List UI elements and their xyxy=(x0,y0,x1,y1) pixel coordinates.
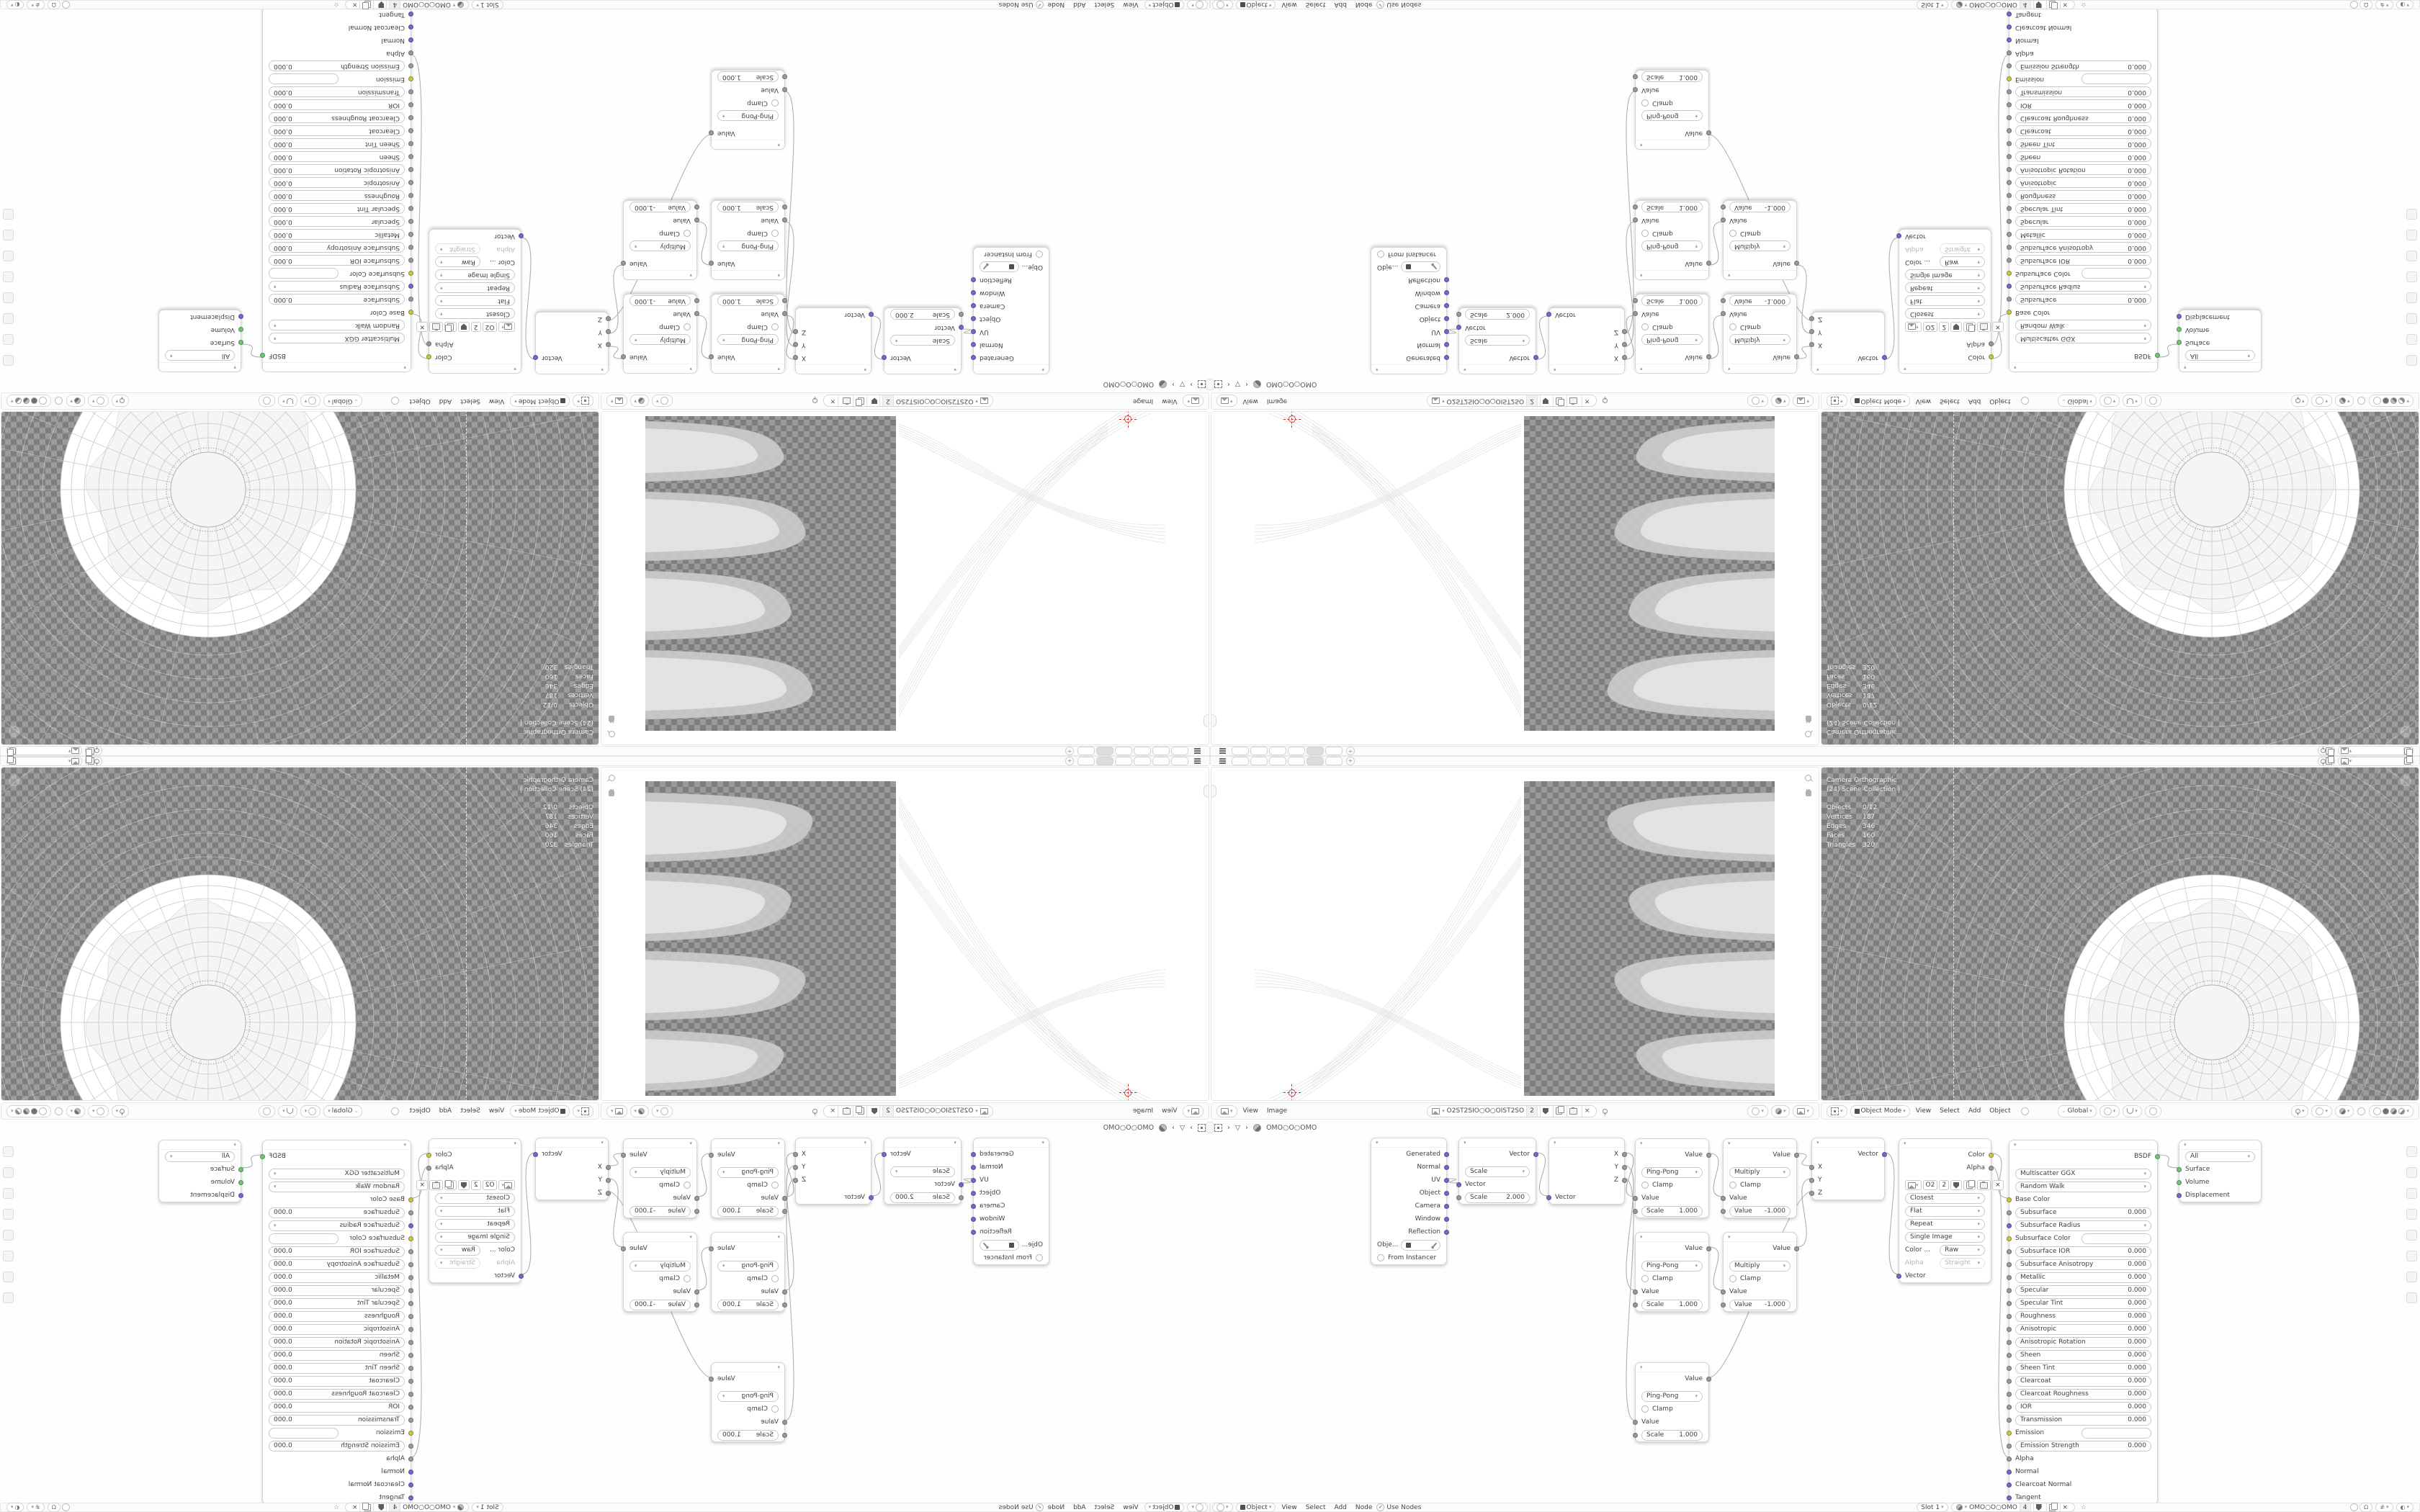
socket[interactable] xyxy=(2007,1340,2012,1345)
value-slider-clearcoat-roughness[interactable]: Clearcoat Roughness0.000 xyxy=(2009,1387,2157,1400)
math-pingpong-node[interactable]: ▾ValuePing-Pong▾ClampValueScale1.000 xyxy=(1635,1138,1709,1218)
socket[interactable] xyxy=(2007,284,2012,289)
output-normal[interactable]: Normal xyxy=(1371,1161,1446,1174)
value-slider-clearcoat-roughness[interactable]: Clearcoat Roughness0.000 xyxy=(2009,112,2157,125)
add-button[interactable]: + xyxy=(1065,757,1074,765)
material-datablock[interactable]: ▾ OMO○O○OMO 4 × xyxy=(345,0,469,9)
play-reverse-button[interactable] xyxy=(1269,747,1286,755)
object-field[interactable]: Obje... xyxy=(974,1238,1049,1251)
output-reflection[interactable]: Reflection xyxy=(974,1225,1049,1238)
socket[interactable] xyxy=(1444,1178,1449,1183)
socket[interactable] xyxy=(1721,1302,1726,1308)
socket[interactable] xyxy=(971,356,976,361)
socket[interactable] xyxy=(2177,1167,2182,1172)
output-window[interactable]: Window xyxy=(1371,1212,1446,1225)
select-repeat[interactable]: Repeat▾ xyxy=(429,1218,521,1230)
socket[interactable] xyxy=(426,1153,431,1158)
shader-editor-area[interactable]: › ▽ › OMO○O○OMO ▾GeneratedNormalUVObject… xyxy=(0,1120,1210,1503)
output-generated[interactable]: Generated xyxy=(974,351,1049,364)
chevron-down-icon[interactable]: ▾ xyxy=(1442,399,1445,404)
jump-end-button[interactable] xyxy=(1325,747,1343,755)
separate-xyz-node[interactable]: ▾XYZVector xyxy=(1549,307,1625,374)
unlink-x-icon[interactable]: × xyxy=(2060,1503,2071,1511)
value-slider-roughness[interactable]: Roughness0.000 xyxy=(2009,189,2157,202)
menu-view[interactable]: View xyxy=(1123,1504,1138,1511)
hidden-panel-tab[interactable] xyxy=(1211,714,1216,727)
socket[interactable] xyxy=(408,1314,413,1319)
copy-icon[interactable] xyxy=(2049,1504,2056,1511)
socket[interactable] xyxy=(1622,1165,1627,1170)
playback-buttons[interactable] xyxy=(1076,757,1188,765)
math-multiply-node[interactable]: ▾ValueMultiply▾ClampValueValue-1.000 xyxy=(1723,200,1797,280)
input-value[interactable]: Value xyxy=(1636,1285,1708,1298)
output-x[interactable]: X xyxy=(1549,1148,1624,1161)
copy-icon[interactable] xyxy=(88,747,94,755)
value-slider-anisotropic-rotation[interactable]: Anisotropic Rotation0.000 xyxy=(2009,1336,2157,1349)
socket[interactable] xyxy=(959,1195,964,1200)
value-slider-transmission[interactable]: Transmission0.000 xyxy=(263,86,411,99)
snap-target-button[interactable]: #▾ xyxy=(2375,0,2393,9)
value-slider-value[interactable]: Value-1.000 xyxy=(624,1298,696,1311)
socket[interactable] xyxy=(793,356,798,361)
menu-image[interactable]: Image xyxy=(1133,1107,1153,1115)
socket[interactable] xyxy=(782,1196,787,1201)
socket[interactable] xyxy=(1882,1152,1887,1157)
pivot-button[interactable]: ◐▾ xyxy=(6,1503,24,1512)
socket[interactable] xyxy=(533,1152,538,1157)
socket[interactable] xyxy=(782,1302,787,1308)
editor-type-button[interactable]: ▾ xyxy=(1187,0,1208,9)
pin-icon[interactable] xyxy=(94,759,99,764)
color-field-emission[interactable]: Emission xyxy=(2009,73,2157,86)
select-ping-pong[interactable]: Ping-Pong▾ xyxy=(1636,1166,1708,1179)
output-value[interactable]: Value xyxy=(1724,257,1796,270)
select-ping-pong[interactable]: Ping-Pong▾ xyxy=(712,240,784,253)
socket[interactable] xyxy=(2007,220,2012,225)
image-datablock[interactable]: ▾ O2ST2SIO○O○OIST2SO 2 × xyxy=(823,395,993,408)
input-vector[interactable]: Vector xyxy=(1459,1178,1536,1191)
socket[interactable] xyxy=(1444,1165,1449,1170)
value-slider-specular-tint[interactable]: Specular Tint0.000 xyxy=(263,1297,411,1310)
input-value[interactable]: Value xyxy=(1724,214,1796,227)
checkbox-clamp[interactable]: Clamp xyxy=(1636,227,1708,240)
math-pingpong-node[interactable]: ▾ValuePing-Pong▾ClampValueScale1.000 xyxy=(1635,70,1709,150)
output-vector[interactable]: Vector xyxy=(1812,351,1884,364)
socket[interactable] xyxy=(1721,1290,1726,1295)
socket[interactable] xyxy=(606,1178,611,1183)
viewport-area[interactable]: Camera Orthographic (24) Scene Collectio… xyxy=(1821,767,2419,1101)
socket[interactable] xyxy=(971,291,976,296)
value-slider-ior[interactable]: IOR0.000 xyxy=(263,99,411,112)
image-canvas[interactable] xyxy=(1524,416,1775,731)
value-slider-emission-strength[interactable]: Emission Strength0.000 xyxy=(2009,1439,2157,1452)
input-displacement[interactable]: Displacement xyxy=(2179,310,2261,323)
select-color-[interactable]: Color ...Raw▾ xyxy=(1899,256,1991,269)
socket[interactable] xyxy=(2177,328,2182,333)
value-slider-emission-strength[interactable]: Emission Strength0.000 xyxy=(2009,60,2157,73)
select-ping-pong[interactable]: Ping-Pong▾ xyxy=(712,109,784,122)
checkbox-clamp[interactable]: Clamp xyxy=(1724,1272,1796,1285)
select-flat[interactable]: Flat▾ xyxy=(429,294,521,307)
input-z[interactable]: Z xyxy=(536,312,608,325)
slot-selector[interactable]: Slot 1▾ xyxy=(472,1503,503,1512)
jump-end-button[interactable] xyxy=(1077,747,1095,755)
output-object[interactable]: Object xyxy=(974,1187,1049,1200)
image-editor-area[interactable] xyxy=(1211,411,1819,745)
output-reflection[interactable]: Reflection xyxy=(974,274,1049,287)
input-x[interactable]: X xyxy=(1812,1161,1884,1174)
checkbox-clamp[interactable]: Clamp xyxy=(624,227,696,240)
output-vector[interactable]: Vector xyxy=(536,1148,608,1161)
socket[interactable] xyxy=(1721,1196,1726,1201)
socket[interactable] xyxy=(1633,312,1638,317)
editor-type-button[interactable]: ▾ xyxy=(1212,0,1233,9)
vector-math-scale-node[interactable]: ▾VectorScale▾VectorScale2.000 xyxy=(1458,1138,1536,1205)
pivot-selector[interactable]: ▾ xyxy=(300,395,321,408)
value-slider-ior[interactable]: IOR0.000 xyxy=(263,1400,411,1413)
socket[interactable] xyxy=(782,1209,787,1214)
copy-icon[interactable] xyxy=(2404,747,2411,755)
copy-icon[interactable] xyxy=(858,397,864,405)
image-datablock-row[interactable]: ▾O22× xyxy=(429,320,521,333)
menu-select[interactable]: Select xyxy=(1095,1504,1115,1511)
value-slider-metallic[interactable]: Metallic0.000 xyxy=(2009,1271,2157,1284)
image-datablock-row[interactable]: ▾O22× xyxy=(429,1179,521,1192)
socket[interactable] xyxy=(782,1290,787,1295)
value-slider-value[interactable]: Value-1.000 xyxy=(1724,201,1796,214)
proportional-circle[interactable] xyxy=(62,1,70,9)
overlay-dropdown-button[interactable]: ▾ xyxy=(1747,1105,1768,1117)
pin-icon[interactable] xyxy=(1603,1109,1608,1114)
socket[interactable] xyxy=(408,1353,413,1358)
input-volume[interactable]: Volume xyxy=(2179,1176,2261,1189)
use-nodes-label[interactable]: Use Nodes xyxy=(999,1,1034,9)
snap-magnet-button[interactable]: Ω xyxy=(2359,0,2372,9)
socket[interactable] xyxy=(408,1197,413,1202)
socket[interactable] xyxy=(869,1195,874,1200)
image-datablock[interactable]: ▾ O2ST2SIO○O○OIST2SO 2 × xyxy=(823,1105,993,1117)
value-slider-subsurface-anisotropy[interactable]: Subsurface Anisotropy0.000 xyxy=(263,241,411,254)
principled-bsdf-node[interactable]: ▾BSDFMultiscatter GGX▾Random Walk▾Base C… xyxy=(262,9,411,372)
socket[interactable] xyxy=(2007,1470,2012,1475)
socket[interactable] xyxy=(2007,64,2012,69)
prev-keyframe-button[interactable] xyxy=(1152,747,1170,755)
socket[interactable] xyxy=(1633,1209,1638,1214)
socket[interactable] xyxy=(971,343,976,348)
user-count[interactable]: 2 xyxy=(1526,1106,1538,1117)
menu-view[interactable]: View xyxy=(1243,1107,1258,1115)
color-field-subsurface-color[interactable]: Subsurface Color xyxy=(263,1232,411,1245)
output-value[interactable]: Value xyxy=(712,351,784,364)
value-slider-sheen[interactable]: Sheen0.000 xyxy=(263,150,411,163)
unlink-x-icon[interactable]: × xyxy=(1582,1106,1592,1117)
copy-icon[interactable] xyxy=(2049,1,2056,9)
input-value[interactable]: Value xyxy=(712,214,784,227)
input-displacement[interactable]: Displacement xyxy=(159,310,241,323)
image-texture-node[interactable]: ▾ColorAlpha▾O22×Closest▾Flat▾Repeat▾Sing… xyxy=(1899,229,1991,374)
select-multiply[interactable]: Multiply▾ xyxy=(1724,240,1796,253)
select-multiscatter-ggx[interactable]: Multiscatter GGX▾ xyxy=(2009,1167,2157,1180)
value-slider-roughness[interactable]: Roughness0.000 xyxy=(263,1310,411,1323)
image-canvas[interactable] xyxy=(645,781,896,1096)
select-ping-pong[interactable]: Ping-Pong▾ xyxy=(712,1390,784,1403)
socket[interactable] xyxy=(408,1470,413,1475)
input-value[interactable]: Value xyxy=(712,1416,784,1428)
output-y[interactable]: Y xyxy=(796,1161,871,1174)
input-value[interactable]: Value xyxy=(1724,1192,1796,1205)
checkbox-clamp[interactable]: Clamp xyxy=(624,1179,696,1192)
input-alpha[interactable]: Alpha xyxy=(2009,1452,2157,1465)
output-value[interactable]: Value xyxy=(624,257,696,270)
channels-dropdown-button[interactable]: ▾ xyxy=(1771,1105,1791,1117)
output-x[interactable]: X xyxy=(796,351,871,364)
socket[interactable] xyxy=(1809,343,1814,348)
input-base-color[interactable]: Base Color xyxy=(2009,306,2157,319)
star-icon[interactable]: ☆ xyxy=(2081,1,2087,9)
pin-icon[interactable] xyxy=(1603,399,1608,404)
menu-view[interactable]: View xyxy=(1916,397,1931,405)
copy-icon[interactable] xyxy=(2404,757,2411,765)
value-slider-emission-strength[interactable]: Emission Strength0.000 xyxy=(263,60,411,73)
input-value[interactable]: Value xyxy=(1636,1192,1708,1205)
select-color-[interactable]: Color ...Raw▾ xyxy=(429,1243,521,1256)
value-slider-subsurface-ior[interactable]: Subsurface IOR0.000 xyxy=(263,254,411,267)
input-tangent[interactable]: Tangent xyxy=(263,9,411,21)
input-clearcoat-normal[interactable]: Clearcoat Normal xyxy=(2009,1478,2157,1491)
socket[interactable] xyxy=(971,278,976,283)
value-slider-sheen-tint[interactable]: Sheen Tint0.000 xyxy=(2009,1362,2157,1374)
socket[interactable] xyxy=(1721,205,1726,210)
socket[interactable] xyxy=(2007,233,2012,238)
output-reflection[interactable]: Reflection xyxy=(1371,274,1446,287)
socket[interactable] xyxy=(793,1152,798,1157)
select-flat[interactable]: Flat▾ xyxy=(429,1205,521,1218)
menu-view[interactable]: View xyxy=(489,1107,504,1115)
value-slider-metallic[interactable]: Metallic0.000 xyxy=(2009,228,2157,241)
socket[interactable] xyxy=(519,1274,524,1279)
fake-user-shield-icon[interactable] xyxy=(871,1108,877,1115)
hamburger-menu-icon[interactable] xyxy=(1219,750,1226,751)
socket[interactable] xyxy=(971,1204,976,1209)
texture-coordinate-node[interactable]: ▾GeneratedNormalUVObjectCameraWindowRefl… xyxy=(1371,247,1447,374)
value-slider-sheen-tint[interactable]: Sheen Tint0.000 xyxy=(263,1362,411,1374)
input-z[interactable]: Z xyxy=(1812,1187,1884,1200)
socket[interactable] xyxy=(2007,77,2012,82)
socket[interactable] xyxy=(2007,155,2012,160)
editor-type-button[interactable]: ▾ xyxy=(1183,395,1204,408)
mode-selector[interactable]: Object Mode▾ xyxy=(1850,395,1910,408)
texture-coordinate-node[interactable]: ▾GeneratedNormalUVObjectCameraWindowRefl… xyxy=(1371,1138,1447,1265)
output-value[interactable]: Value xyxy=(1724,1242,1796,1255)
input-value[interactable]: Value xyxy=(624,1192,696,1205)
material-output-node[interactable]: ▾All▾SurfaceVolumeDisplacement xyxy=(2179,310,2262,372)
value-slider-specular[interactable]: Specular0.000 xyxy=(263,1284,411,1297)
xray-toggle[interactable] xyxy=(2357,397,2365,405)
socket[interactable] xyxy=(2007,207,2012,212)
shader-context-selector[interactable]: Object▾ xyxy=(1236,1503,1276,1512)
value-slider-ior[interactable]: IOR0.000 xyxy=(2009,99,2157,112)
shading-mode-cluster[interactable]: ▾ xyxy=(2369,1105,2414,1117)
shader-editor-area[interactable]: › ▽ › OMO○O○OMO ▾GeneratedNormalUVObject… xyxy=(1210,1120,2420,1503)
pivot-selector[interactable]: ▾ xyxy=(2099,395,2120,408)
input-base-color[interactable]: Base Color xyxy=(263,306,411,319)
socket[interactable] xyxy=(1633,88,1638,93)
output-generated[interactable]: Generated xyxy=(974,1148,1049,1161)
value-slider-sheen[interactable]: Sheen0.000 xyxy=(263,1349,411,1362)
menu-select[interactable]: Select xyxy=(460,1107,480,1115)
input-surface[interactable]: Surface xyxy=(2179,1163,2261,1176)
principled-bsdf-node[interactable]: ▾BSDFMultiscatter GGX▾Random Walk▾Base C… xyxy=(262,1140,411,1503)
select-ping-pong[interactable]: Ping-Pong▾ xyxy=(712,1166,784,1179)
input-clearcoat-normal[interactable]: Clearcoat Normal xyxy=(263,1478,411,1491)
image-editor-area[interactable] xyxy=(601,767,1209,1101)
editor-type-button[interactable]: ▾ xyxy=(1212,1503,1233,1512)
socket[interactable] xyxy=(1456,312,1461,318)
socket[interactable] xyxy=(1896,1274,1901,1279)
socket[interactable] xyxy=(2007,194,2012,199)
copy-icon[interactable] xyxy=(9,747,16,755)
select-single-image[interactable]: Single Image▾ xyxy=(429,1230,521,1243)
math-pingpong-node[interactable]: ▾ValuePing-Pong▾ClampValueScale1.000 xyxy=(1635,200,1709,280)
unlink-x-icon[interactable]: × xyxy=(350,1,361,9)
input-volume[interactable]: Volume xyxy=(159,323,241,336)
value-slider-subsurface[interactable]: Subsurface0.000 xyxy=(2009,1206,2157,1219)
socket[interactable] xyxy=(1546,1195,1551,1200)
image-canvas[interactable] xyxy=(1524,781,1775,1096)
socket[interactable] xyxy=(1633,1302,1638,1308)
gizmo-dropdown-button[interactable]: ▾ xyxy=(112,395,130,408)
select-subsurface-radius[interactable]: Subsurface Radius▾ xyxy=(2009,1219,2157,1232)
editor-type-button[interactable]: ▾ xyxy=(1827,395,1847,408)
pan-hand-icon[interactable] xyxy=(1806,716,1811,722)
socket[interactable] xyxy=(2007,38,2012,43)
snap-target-button[interactable]: #▾ xyxy=(2375,1503,2393,1512)
socket[interactable] xyxy=(2007,51,2012,56)
output-camera[interactable]: Camera xyxy=(1371,1200,1446,1212)
overlay-dropdown-button[interactable]: ▾ xyxy=(2311,1105,2332,1117)
output-value[interactable]: Value xyxy=(712,1242,784,1255)
unlink-x-icon[interactable]: × xyxy=(1582,396,1592,407)
select-ping-pong[interactable]: Ping-Pong▾ xyxy=(1636,109,1708,122)
overlay-dropdown-button[interactable]: ▾ xyxy=(88,1105,109,1117)
output-vector[interactable]: Vector xyxy=(1459,351,1536,364)
socket[interactable] xyxy=(2007,1236,2012,1241)
principled-bsdf-node[interactable]: ▾BSDFMultiscatter GGX▾Random Walk▾Base C… xyxy=(2009,9,2158,372)
jump-start-button[interactable] xyxy=(1171,757,1188,765)
use-nodes-label[interactable]: Use Nodes xyxy=(1386,1504,1421,1511)
chevron-down-icon[interactable]: ▾ xyxy=(68,749,71,754)
value-slider-scale[interactable]: Scale1.000 xyxy=(1636,201,1708,214)
socket[interactable] xyxy=(2007,310,2012,315)
socket[interactable] xyxy=(1633,1433,1638,1438)
color-field-subsurface-color[interactable]: Subsurface Color xyxy=(263,267,411,280)
value-slider-anisotropic[interactable]: Anisotropic0.000 xyxy=(263,176,411,189)
sidebar-tab-column[interactable] xyxy=(3,209,14,366)
socket[interactable] xyxy=(694,1290,699,1295)
image-texture-node[interactable]: ▾ColorAlpha▾O22×Closest▾Flat▾Repeat▾Sing… xyxy=(429,1138,521,1283)
value-slider-scale[interactable]: Scale2.000 xyxy=(884,1191,961,1204)
copy-icon[interactable] xyxy=(9,757,16,765)
input-normal[interactable]: Normal xyxy=(263,34,411,47)
input-y[interactable]: Y xyxy=(1812,1174,1884,1187)
hamburger-menu-icon[interactable] xyxy=(1219,760,1226,761)
socket[interactable] xyxy=(408,1392,413,1397)
socket[interactable] xyxy=(260,1154,265,1159)
math-pingpong-node[interactable]: ▾ValuePing-Pong▾ClampValueScale1.000 xyxy=(1635,1232,1709,1312)
copy-icon[interactable] xyxy=(88,757,94,765)
editor-type-button[interactable]: ▾ xyxy=(1827,1105,1847,1117)
value-slider-sheen[interactable]: Sheen0.000 xyxy=(2009,1349,2157,1362)
output-value[interactable]: Value xyxy=(624,1242,696,1255)
output-color[interactable]: Color xyxy=(1899,351,1991,364)
select-subsurface-radius[interactable]: Subsurface Radius▾ xyxy=(263,280,411,293)
snap-magnet-button[interactable]: Ω xyxy=(48,1503,60,1512)
select-color-[interactable]: Color ...Raw▾ xyxy=(429,256,521,269)
socket[interactable] xyxy=(709,1377,714,1382)
mode-selector[interactable]: Object Mode▾ xyxy=(510,1105,570,1117)
socket[interactable] xyxy=(408,1236,413,1241)
menu-select[interactable]: Select xyxy=(460,397,480,405)
value-slider-transmission[interactable]: Transmission0.000 xyxy=(2009,1413,2157,1426)
tool-circle-button[interactable] xyxy=(2021,1107,2029,1115)
playback-buttons[interactable] xyxy=(1232,747,1344,755)
menu-node[interactable]: Node xyxy=(1048,1,1065,9)
socket[interactable] xyxy=(1633,1196,1638,1201)
menu-image[interactable]: Image xyxy=(1133,397,1153,405)
copy-icon[interactable] xyxy=(364,1,371,9)
socket[interactable] xyxy=(1622,1178,1627,1183)
zoom-icon[interactable] xyxy=(1805,775,1811,781)
output-uv[interactable]: UV xyxy=(974,325,1049,338)
select-multiscatter-ggx[interactable]: Multiscatter GGX▾ xyxy=(2009,332,2157,345)
menu-node[interactable]: Node xyxy=(1048,1504,1065,1511)
select-scale[interactable]: Scale▾ xyxy=(1459,334,1536,347)
xray-toggle[interactable] xyxy=(55,1107,63,1115)
menu-select[interactable]: Select xyxy=(1306,1,1326,9)
output-vector[interactable]: Vector xyxy=(536,351,608,364)
material-datablock[interactable]: ▾ OMO○O○OMO 4 × xyxy=(1951,1503,2075,1512)
color-field-subsurface-color[interactable]: Subsurface Color xyxy=(2009,267,2157,280)
select-subsurface-radius[interactable]: Subsurface Radius▾ xyxy=(2009,280,2157,293)
menu-add[interactable]: Add xyxy=(439,397,452,405)
select-multiply[interactable]: Multiply▾ xyxy=(624,1166,696,1179)
socket[interactable] xyxy=(1633,1420,1638,1425)
socket[interactable] xyxy=(408,1431,413,1436)
menu-add[interactable]: Add xyxy=(1073,1504,1085,1511)
select-alpha[interactable]: AlphaStraight▾ xyxy=(1899,1256,1991,1269)
menu-select[interactable]: Select xyxy=(1940,1107,1960,1115)
value-slider-clearcoat[interactable]: Clearcoat0.000 xyxy=(2009,1374,2157,1387)
next-keyframe-button[interactable] xyxy=(1096,747,1113,755)
menu-view[interactable]: View xyxy=(1281,1504,1296,1511)
checkbox-clamp[interactable]: Clamp xyxy=(624,320,696,333)
chevron-down-icon[interactable]: ▾ xyxy=(1442,1109,1445,1114)
socket[interactable] xyxy=(2007,12,2012,17)
math-multiply-node[interactable]: ▾ValueMultiply▾ClampValueValue-1.000 xyxy=(623,1138,697,1218)
socket[interactable] xyxy=(2007,1262,2012,1267)
socket[interactable] xyxy=(2007,90,2012,95)
socket[interactable] xyxy=(709,1246,714,1251)
socket[interactable] xyxy=(426,1166,431,1171)
hamburger-menu-icon[interactable] xyxy=(1194,750,1201,751)
menu-view[interactable]: View xyxy=(1916,1107,1931,1115)
select-all[interactable]: All▾ xyxy=(159,349,241,362)
socket[interactable] xyxy=(238,1167,243,1172)
value-slider-scale[interactable]: Scale1.000 xyxy=(712,1205,784,1218)
input-z[interactable]: Z xyxy=(1812,312,1884,325)
value-slider-anisotropic-rotation[interactable]: Anisotropic Rotation0.000 xyxy=(2009,163,2157,176)
output-bsdf[interactable]: BSDF xyxy=(263,349,411,362)
